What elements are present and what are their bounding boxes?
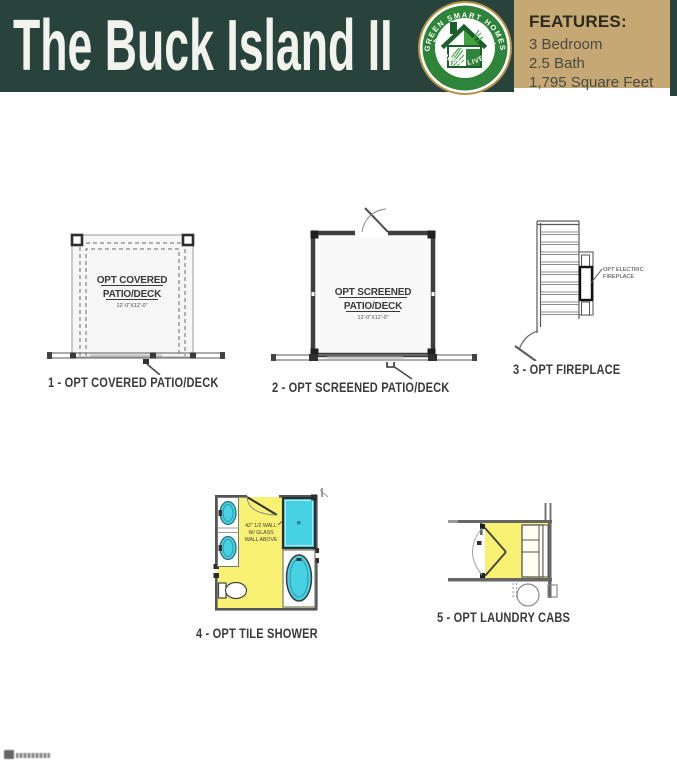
feature-bedrooms: 3 Bedroom [529, 35, 669, 54]
flyer-page: The Buck Island II [0, 0, 677, 768]
features-heading: FEATURES: [529, 12, 669, 32]
mls-watermark [4, 750, 56, 762]
plan-caption-screened-patio: 2 - OPT SCREENED PATIO/DECK [272, 380, 449, 395]
room-dimensions: 12'-0"X12'-0" [357, 315, 388, 321]
plan-caption-fireplace: 3 - OPT FIREPLACE [513, 362, 620, 377]
watermark-text-blur [16, 753, 50, 758]
plan-caption-tile-shower: 4 - OPT TILE SHOWER [196, 626, 318, 641]
feature-square-feet: 1,795 Square Feet [529, 73, 669, 92]
plan-caption-covered-patio: 1 - OPT COVERED PATIO/DECK [48, 375, 219, 390]
fireplace-drawing: OPT ELECTRIC FIREPLACE [495, 215, 670, 361]
screened-patio-drawing: OPT SCREENED PATIO/DECK 12'-0"X12'-0" [265, 205, 480, 380]
shower-annotation-line3: WALL ABOVE [245, 537, 278, 543]
shower-annotation-line2: W/ GLASS [248, 530, 274, 536]
covered-patio-drawing: OPT COVERED PATIO/DECK 12'-0"X12'-0" [30, 225, 235, 375]
laundry-cabs-drawing [430, 495, 610, 613]
fireplace-annotation-line1: OPT ELECTRIC [603, 267, 644, 273]
tile-shower-drawing: 42" 1/2 WALL W/ GLASS WALL ABOVE [190, 488, 365, 623]
feature-baths: 2.5 Bath [529, 54, 669, 73]
header-right-strip [670, 0, 677, 96]
plan-caption-laundry-cabs: 5 - OPT LAUNDRY CABS [437, 610, 570, 625]
features-block: FEATURES: 3 Bedroom 2.5 Bath 1,795 Squar… [529, 12, 669, 92]
room-dimensions: 12'-0"X12'-0" [116, 303, 147, 309]
room-label-line1: OPT SCREENED [335, 287, 412, 298]
room-label-line2: PATIO/DECK [103, 289, 162, 300]
page-title: The Buck Island II [13, 0, 393, 92]
watermark-logo-icon [4, 750, 14, 759]
room-label-line2: PATIO/DECK [344, 301, 403, 312]
shower-annotation-line1: 42" 1/2 WALL [245, 523, 277, 529]
fireplace-annotation-line2: FIREPLACE [603, 274, 634, 280]
green-smart-homes-logo-icon: GREEN SMART HOMES LIVE GREEN. LIVE SMART [417, 0, 513, 96]
room-label-line1: OPT COVERED [97, 275, 168, 286]
